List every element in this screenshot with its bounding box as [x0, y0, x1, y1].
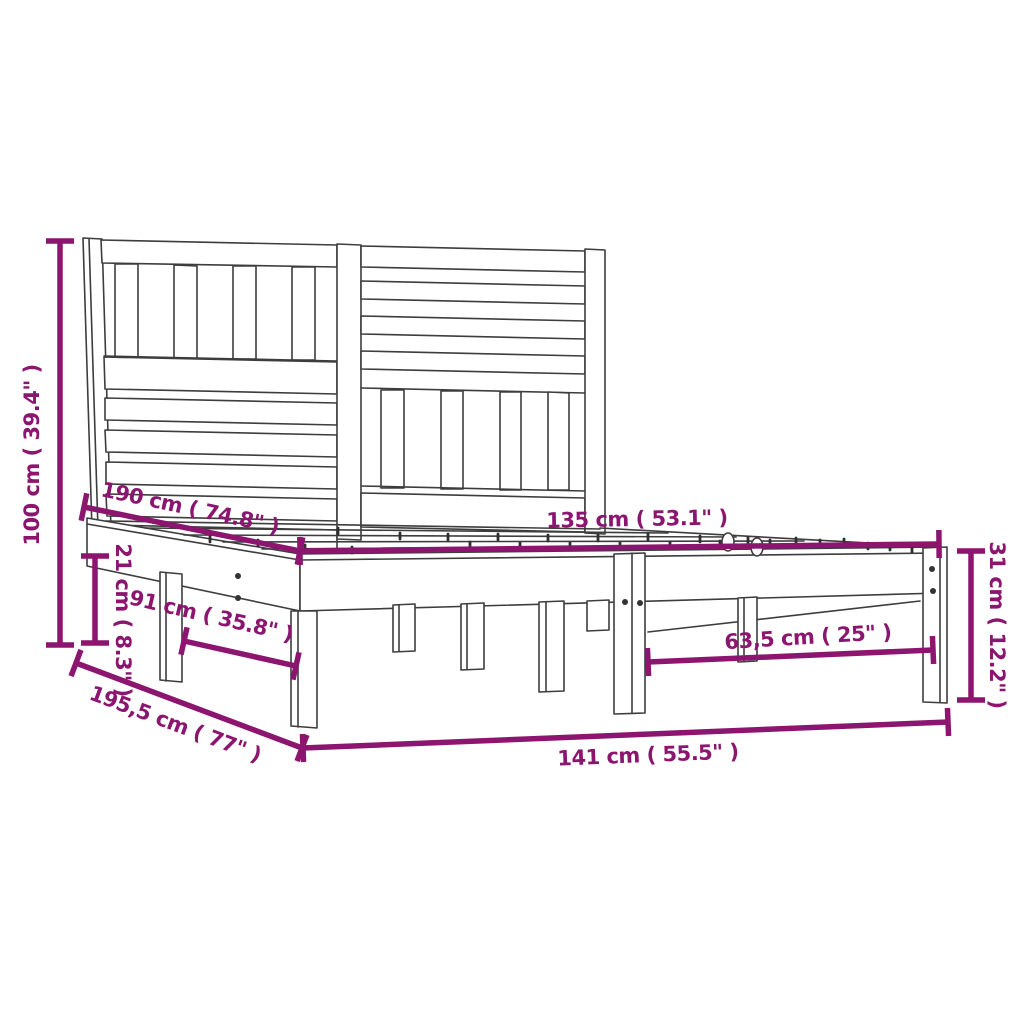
diagram-canvas: 100 cm ( 39.4" )190 cm ( 74.8" )21 cm ( … — [0, 0, 1024, 1024]
dimension-label-overall-width: 141 cm ( 55.5" ) — [557, 739, 739, 770]
dimension-line — [947, 708, 948, 736]
dimension-label-side-rail-height: 21 cm ( 8.3" ) — [111, 543, 135, 696]
dimension-label-bed-width: 135 cm ( 53.1" ) — [546, 505, 728, 532]
head-left-leg — [160, 572, 182, 682]
bed-frame-dimension-diagram: 100 cm ( 39.4" )190 cm ( 74.8" )21 cm ( … — [0, 0, 1024, 1024]
headboard-right-post — [585, 249, 605, 534]
dimension-line — [302, 734, 303, 762]
dimension-label-overall-height: 100 cm ( 39.4" ) — [20, 364, 44, 545]
foot-right-leg — [923, 547, 947, 703]
dimension-label-foot-end-height: 31 cm ( 12.2" ) — [985, 541, 1009, 708]
dimension-overall-width: 141 cm ( 55.5" ) — [302, 708, 948, 771]
dimension-line — [184, 641, 296, 666]
headboard-center-stile — [337, 244, 361, 540]
dimension-overall-length: 195,5 cm ( 77" ) — [71, 650, 307, 767]
dimension-foot-end-height: 31 cm ( 12.2" ) — [957, 541, 1009, 708]
dimension-line — [647, 648, 648, 676]
center-front-leg — [614, 553, 645, 714]
dimension-overall-height: 100 cm ( 39.4" ) — [20, 241, 74, 645]
dimension-line — [648, 650, 933, 662]
dimension-line — [81, 493, 87, 520]
headboard-right-panel — [361, 246, 585, 532]
dimension-leg-spacing-front: 63,5 cm ( 25" ) — [647, 620, 933, 676]
dimension-line — [932, 636, 933, 664]
